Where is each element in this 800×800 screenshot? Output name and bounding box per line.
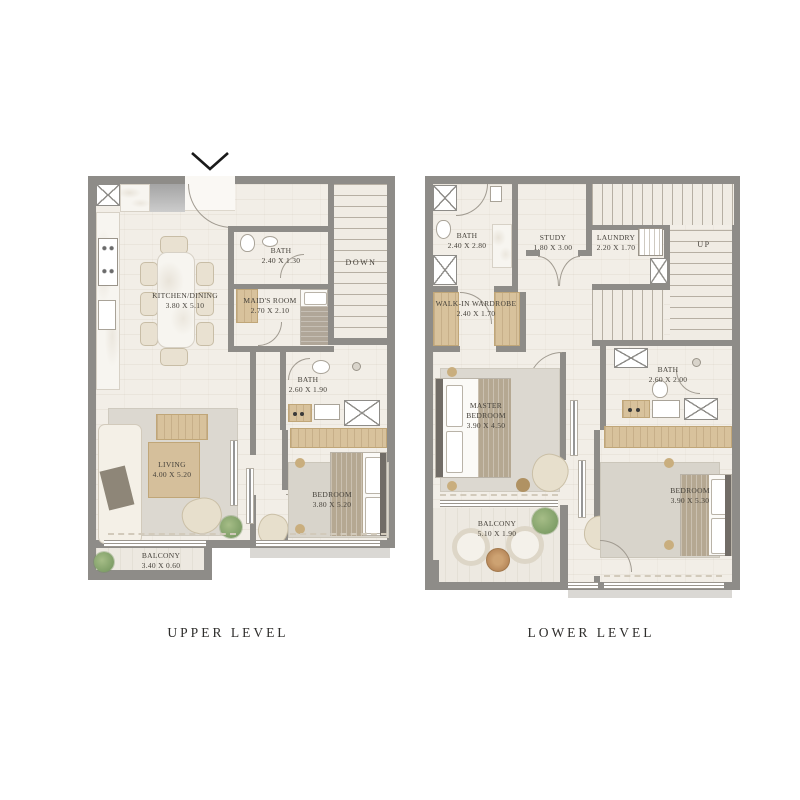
shaft-icon [650,258,668,284]
wall-segment [425,346,460,352]
room-dims: 3.80 X 5.10 [152,301,218,311]
room-name: MASTER BEDROOM [457,401,515,421]
room-dims: 2.40 X 1.70 [436,309,517,319]
room-dims: 5.10 X 1.90 [478,529,517,539]
room-label-bath: BATH 2.40 X 2.80 [448,231,487,251]
room-name: BEDROOM [312,490,352,500]
sink-icon [490,186,502,202]
room-name: BEDROOM [670,486,710,496]
tv-console [570,400,578,456]
room-label-bedroom: BEDROOM 3.90 X 5.30 [670,486,710,506]
stairs-direction-label: UP [697,240,710,249]
shaft-icon [614,348,648,368]
room-label-bath-2: BATH 2.60 X 2.00 [649,365,688,385]
room-label-bath: BATH 2.40 X 1.30 [262,246,301,266]
wall-segment [512,184,518,292]
shower-head-icon [692,358,701,367]
room-label-balcony: BALCONY 3.40 X 0.60 [142,551,181,571]
room-label-study: STUDY 1.80 X 3.00 [534,233,573,253]
window [604,582,724,589]
room-name: BATH [262,246,301,256]
pouf [664,540,674,550]
round-table [486,548,510,572]
room-dims: 2.40 X 2.80 [448,241,487,251]
bath-vanity [622,400,650,418]
room-label-bedroom: BEDROOM 3.80 X 5.20 [312,490,352,510]
room-name: BATH [289,375,328,385]
shower-tile [492,224,512,268]
upper-level-caption: UPPER LEVEL [167,625,288,641]
lower-level-plan: UP [0,0,800,800]
wall-segment [496,346,526,352]
room-label-living: LIVING 4.00 X 5.20 [153,460,192,480]
room-name: BATH [448,231,487,241]
wall-segment [592,340,740,346]
room-dims: 4.00 X 5.20 [153,470,192,480]
room-dims: 3.90 X 5.30 [670,496,710,506]
room-dims: 3.80 X 5.20 [312,500,352,510]
floorplan-canvas: DOWN [0,0,800,800]
room-label-walk-in-wardrobe: WALK-IN WARDROBE 2.40 X 1.70 [436,299,517,319]
room-label-bath-2: BATH 2.60 X 1.90 [289,375,328,395]
window [568,582,598,589]
pouf [447,367,457,377]
pouf [447,481,457,491]
room-label-master-bedroom: MASTER BEDROOM 3.90 X 4.50 [457,401,515,430]
shower-icon [684,398,718,420]
wall-segment [560,505,568,590]
room-name: WALK-IN WARDROBE [436,299,517,309]
wardrobe [604,426,732,448]
room-name: MAID'S ROOM [243,296,296,306]
room-dims: 2.60 X 2.00 [649,375,688,385]
shaft-icon [433,185,457,211]
window-trim [604,575,722,577]
tv-console [578,460,586,518]
wall-segment [578,250,592,256]
plant-icon [532,508,558,534]
shaft-icon [433,255,457,285]
room-label-maids-room: MAID'S ROOM 2.70 X 2.10 [243,296,296,316]
window [440,500,558,507]
room-name: BATH [649,365,688,375]
room-name: BALCONY [478,519,517,529]
room-name: STUDY [534,233,573,243]
room-name: LIVING [153,460,192,470]
wall-segment [520,292,526,352]
pouf [664,458,674,468]
staircase-up [592,184,734,225]
wall-segment [425,560,439,590]
room-name: KITCHEN/DINING [152,291,218,301]
room-label-kitchen-dining: KITCHEN/DINING 3.80 X 5.10 [152,291,218,311]
stairs-direction-label: DOWN [346,258,377,267]
pouf [516,478,530,492]
staircase-flight [592,290,664,340]
room-dims: 1.80 X 3.00 [534,243,573,253]
room-dims: 2.70 X 2.10 [243,306,296,316]
ledge [568,590,732,598]
room-dims: 2.60 X 1.90 [289,385,328,395]
bathtub-icon [652,400,680,418]
wall-segment [600,346,606,430]
window-trim [440,494,558,496]
lower-level-caption: LOWER LEVEL [527,625,654,641]
room-dims: 3.40 X 0.60 [142,561,181,571]
room-dims: 3.90 X 4.50 [457,421,515,431]
room-name: LAUNDRY [597,233,636,243]
room-dims: 2.40 X 1.30 [262,256,301,266]
room-name: BALCONY [142,551,181,561]
room-label-laundry: LAUNDRY 2.20 X 1.70 [597,233,636,253]
room-label-balcony-2: BALCONY 5.10 X 1.90 [478,519,517,539]
room-dims: 2.20 X 1.70 [597,243,636,253]
washing-machine-icon [638,228,663,256]
